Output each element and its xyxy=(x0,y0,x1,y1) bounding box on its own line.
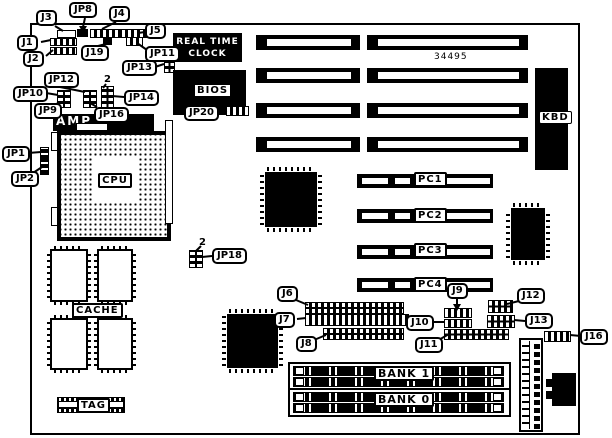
isa-slot-1-right xyxy=(367,35,528,50)
ticks xyxy=(513,203,543,207)
ticks xyxy=(132,253,136,298)
isa-slot-2-right xyxy=(367,68,528,83)
slot-stripe xyxy=(395,213,410,219)
ticks xyxy=(506,210,510,258)
tag-label: TAG xyxy=(77,398,110,413)
slot-stripe xyxy=(267,141,351,148)
jumper-jp12-jp16 xyxy=(83,90,97,108)
bank0-label: BANK 0 xyxy=(374,392,434,407)
ticks xyxy=(54,369,84,373)
callout-j6: J6 xyxy=(277,286,298,302)
motherboard-diagram: REAL TIME CLOCK BIOS 34495 KBD AMP CPU P… xyxy=(0,0,612,438)
bios-label: BIOS xyxy=(193,83,232,98)
slot-stripe xyxy=(362,282,388,288)
jumper-jp8 xyxy=(77,29,88,37)
jumper-jp1 xyxy=(40,147,49,160)
callout-jp10: JP10 xyxy=(13,86,48,102)
slot-stripe xyxy=(378,141,519,148)
callout-j19: J19 xyxy=(81,45,109,61)
slot-stripe xyxy=(267,107,351,114)
callout-jp16: JP16 xyxy=(94,107,129,123)
ticks xyxy=(267,167,315,171)
simm-latch xyxy=(493,393,502,401)
slot-stripe xyxy=(378,72,519,79)
cache-chip-2 xyxy=(97,249,133,302)
simm-latch xyxy=(493,378,502,386)
callout-jp18: JP18 xyxy=(212,248,247,264)
isa-slot-3-left xyxy=(256,103,360,118)
callout-j3: J3 xyxy=(36,10,57,26)
ticks xyxy=(132,322,136,366)
cache-chip-4 xyxy=(97,318,133,370)
connector-j13 xyxy=(487,315,515,328)
connector-j3 xyxy=(57,30,76,38)
socket-side-bar xyxy=(165,120,173,224)
callout-j16: J16 xyxy=(580,329,608,345)
socket-left-tab-1 xyxy=(51,132,58,151)
callout-jp14: JP14 xyxy=(124,90,159,106)
cpu-die: CPU xyxy=(93,157,137,203)
jp18-pin2-mark: 2 xyxy=(199,237,206,248)
ticks xyxy=(318,174,322,225)
qfp-chip-1 xyxy=(265,172,317,227)
ticks xyxy=(267,228,315,232)
callout-j8: J8 xyxy=(296,336,317,352)
ticks xyxy=(229,309,276,313)
jumper-j19 xyxy=(103,37,112,45)
power-pins-left xyxy=(522,341,530,429)
pc1-label: PC1 xyxy=(414,172,447,187)
connector-jp11 xyxy=(126,37,143,46)
connector-j12 xyxy=(488,300,513,313)
ticks xyxy=(229,369,276,373)
connector-j16 xyxy=(544,331,571,342)
ticks xyxy=(101,369,129,373)
connector-j8 xyxy=(323,328,404,340)
connector-j2 xyxy=(50,47,77,55)
simm-latch xyxy=(295,378,304,386)
socket-left-tab-2 xyxy=(51,207,58,226)
qfp-chip-3 xyxy=(511,208,545,260)
connector-j10 xyxy=(444,319,472,328)
slot-stripe xyxy=(395,282,410,288)
rtc-chip: REAL TIME CLOCK xyxy=(173,33,242,62)
connector-j9 xyxy=(444,308,472,318)
cpu-label: CPU xyxy=(98,173,132,188)
simm-latch xyxy=(493,404,502,412)
ticks xyxy=(260,174,264,225)
callout-j13: J13 xyxy=(525,313,553,329)
callout-jp8: JP8 xyxy=(69,2,97,18)
isa-slot-4-left xyxy=(256,137,360,152)
cpu-socket: CPU xyxy=(57,131,171,241)
callout-j2: J2 xyxy=(23,51,44,67)
slot-stripe xyxy=(395,178,410,184)
ticks xyxy=(54,246,84,250)
pc3-label: PC3 xyxy=(414,243,447,258)
socket-notch xyxy=(76,123,108,131)
pc4-label: PC4 xyxy=(414,277,447,292)
ticks xyxy=(101,246,129,250)
board-number: 34495 xyxy=(434,52,468,62)
callout-jp2: JP2 xyxy=(11,171,39,187)
cache-chip-1 xyxy=(50,249,88,302)
isa-slot-3-right xyxy=(367,103,528,118)
callout-j1: J1 xyxy=(17,35,38,51)
slot-stripe xyxy=(395,249,410,255)
isa-slot-2-left xyxy=(256,68,360,83)
kbd-label: KBD xyxy=(539,111,572,124)
power-pins-right xyxy=(534,341,540,429)
power-socket-tab xyxy=(546,391,552,399)
ticks xyxy=(94,322,98,366)
callout-jp12: JP12 xyxy=(44,72,79,88)
slot-stripe xyxy=(362,213,388,219)
jp14-pin2-mark: 2 xyxy=(104,74,111,85)
power-socket xyxy=(552,373,576,406)
callout-j11: J11 xyxy=(415,337,443,353)
ticks xyxy=(222,316,226,366)
slot-stripe xyxy=(267,72,351,79)
cache-chip-3 xyxy=(50,318,88,370)
connector-j1 xyxy=(50,38,77,46)
callout-jp9: JP9 xyxy=(34,103,62,119)
callout-jp13: JP13 xyxy=(122,60,157,76)
callout-jp20: JP20 xyxy=(184,105,219,121)
slot-stripe xyxy=(378,39,519,46)
jumper-jp2 xyxy=(40,160,49,175)
simm-latch xyxy=(295,393,304,401)
ticks xyxy=(94,253,98,298)
callout-j7: J7 xyxy=(274,312,295,328)
slot-stripe xyxy=(267,39,351,46)
connector-j11 xyxy=(444,329,509,340)
callout-j10: J10 xyxy=(406,315,434,331)
simm-latch xyxy=(295,367,304,375)
pc2-label: PC2 xyxy=(414,208,447,223)
ticks xyxy=(47,253,51,298)
bank1-label: BANK 1 xyxy=(374,366,434,381)
connector-jp20 xyxy=(226,106,249,116)
slot-stripe xyxy=(362,249,388,255)
callout-j4: J4 xyxy=(109,6,130,22)
callout-jp1: JP1 xyxy=(2,146,30,162)
ticks xyxy=(87,322,91,366)
qfp-chip-2 xyxy=(227,314,278,368)
callout-j9: J9 xyxy=(447,283,468,299)
rtc-label-line2: CLOCK xyxy=(173,48,242,60)
rtc-label-line1: REAL TIME xyxy=(173,36,242,48)
simm-latch xyxy=(295,404,304,412)
ticks xyxy=(546,210,550,258)
slot-stripe xyxy=(362,178,388,184)
connector-j7 xyxy=(305,314,409,326)
callout-j5: J5 xyxy=(145,23,166,39)
power-socket-tab xyxy=(546,379,552,387)
cache-label: CACHE xyxy=(72,303,123,318)
ticks xyxy=(47,322,51,366)
ticks xyxy=(87,253,91,298)
jumper-jp18 xyxy=(189,250,203,268)
ticks xyxy=(513,261,543,265)
isa-slot-1-left xyxy=(256,35,360,50)
callout-j12: J12 xyxy=(517,288,545,304)
power-header xyxy=(519,338,543,432)
connector-j6 xyxy=(305,302,404,314)
slot-stripe xyxy=(378,107,519,114)
simm-latch xyxy=(493,367,502,375)
isa-slot-4-right xyxy=(367,137,528,152)
